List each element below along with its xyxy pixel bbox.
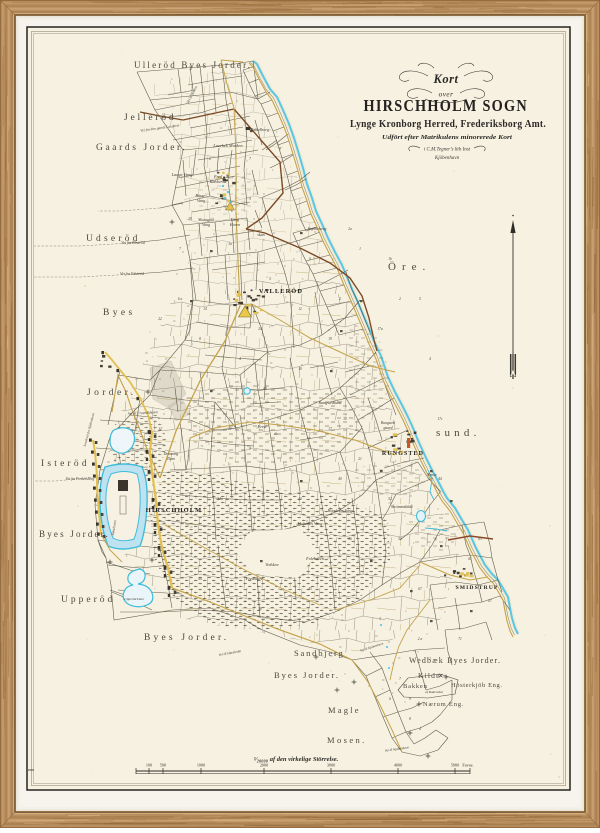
svg-text:10: 10 xyxy=(298,367,302,371)
svg-text:3a: 3a xyxy=(228,242,232,246)
svg-text:3000: 3000 xyxy=(327,763,335,768)
svg-text:Kobberöd: Kobberöd xyxy=(209,179,228,184)
svg-text:Strömmekilde: Strömmekilde xyxy=(391,504,413,509)
svg-text:67: 67 xyxy=(488,599,492,603)
svg-text:24: 24 xyxy=(258,327,262,331)
svg-text:HIRSCHHOLM: HIRSCHHOLM xyxy=(146,507,202,514)
svg-text:RUNGSTED: RUNGSTED xyxy=(382,451,424,457)
svg-text:9: 9 xyxy=(249,447,251,451)
svg-text:Ulleröd Byes Jorder.: Ulleröd Byes Jorder. xyxy=(134,60,252,70)
svg-text:Vei fra Fredensborg: Vei fra Fredensborg xyxy=(66,477,95,481)
svg-text:50: 50 xyxy=(398,537,402,541)
svg-text:Rungstedlund: Rungstedlund xyxy=(317,400,342,405)
svg-text:22: 22 xyxy=(158,317,162,321)
svg-text:Gaards Jorder.: Gaards Jorder. xyxy=(96,143,187,153)
svg-text:SMIDSTRUP: SMIDSTRUP xyxy=(456,585,499,591)
svg-text:4: 4 xyxy=(429,357,431,361)
svg-text:3: 3 xyxy=(249,197,251,201)
svg-text:gaard: gaard xyxy=(384,426,393,430)
svg-text:17a: 17a xyxy=(377,327,383,331)
svg-text:i C.M.Tegner’s lith Inst: i C.M.Tegner’s lith Inst xyxy=(424,148,471,153)
svg-text:12: 12 xyxy=(298,307,302,311)
svg-text:Byes: Byes xyxy=(103,308,136,318)
svg-text:8: 8 xyxy=(409,717,411,721)
svg-text:500: 500 xyxy=(160,763,166,768)
svg-text:Byes Jorder.: Byes Jorder. xyxy=(39,529,110,539)
svg-text:4: 4 xyxy=(239,357,241,361)
svg-text:40: 40 xyxy=(338,477,342,481)
svg-text:Byes Jorder.: Byes Jorder. xyxy=(144,633,229,643)
svg-text:Jelleröd: Jelleröd xyxy=(124,113,176,123)
svg-text:8: 8 xyxy=(199,337,201,341)
svg-text:Rungsted: Rungsted xyxy=(380,421,395,425)
svg-text:Byes Jorder.: Byes Jorder. xyxy=(274,670,340,680)
svg-text:Hofsches Vang: Hofsches Vang xyxy=(297,521,323,526)
svg-text:14: 14 xyxy=(203,307,207,311)
svg-text:Folehaven: Folehaven xyxy=(305,556,324,561)
svg-text:40: 40 xyxy=(298,497,302,501)
svg-text:61: 61 xyxy=(468,557,472,561)
svg-text:45: 45 xyxy=(308,587,312,591)
svg-text:Dam: Dam xyxy=(166,457,175,461)
svg-text:31: 31 xyxy=(228,427,232,431)
svg-text:Vang: Vang xyxy=(197,198,205,203)
svg-text:67: 67 xyxy=(418,587,422,591)
svg-text:Vei fra Ebseröd: Vei fra Ebseröd xyxy=(121,241,145,245)
svg-text:2a: 2a xyxy=(348,227,352,231)
svg-text:7: 7 xyxy=(249,157,251,161)
svg-text:sund.: sund. xyxy=(436,427,481,439)
svg-text:Sandbjerg: Sandbjerg xyxy=(294,648,345,658)
svg-text:Vei fra Edsöröd: Vei fra Edsöröd xyxy=(120,272,144,276)
svg-text:6: 6 xyxy=(389,697,391,701)
svg-text:Kort: Kort xyxy=(433,72,459,86)
svg-text:Wedbæk Byes Jorder.: Wedbæk Byes Jorder. xyxy=(409,656,501,665)
svg-text:100: 100 xyxy=(146,763,152,768)
svg-text:VALLERÖD: VALLERÖD xyxy=(259,288,303,295)
svg-text:5000: 5000 xyxy=(451,763,459,768)
svg-text:21: 21 xyxy=(358,457,362,461)
svg-text:1: 1 xyxy=(359,247,361,251)
svg-text:2: 2 xyxy=(399,297,401,301)
svg-text:Dronning: Dronning xyxy=(163,452,179,456)
svg-text:6: 6 xyxy=(309,257,311,261)
svg-text:2: 2 xyxy=(429,657,431,661)
svg-text:Nærum Eng.: Nærum Eng. xyxy=(423,701,464,708)
svg-text:Upperöd Dam: Upperöd Dam xyxy=(124,597,144,601)
svg-text:Mosen.: Mosen. xyxy=(327,735,367,745)
svg-text:Krone: Krone xyxy=(426,473,437,477)
svg-text:6 a: 6 a xyxy=(178,297,183,301)
svg-text:7: 7 xyxy=(179,247,181,251)
svg-text:Favne.: Favne. xyxy=(462,763,473,768)
svg-text:Laerbek Marken: Laerbek Marken xyxy=(212,143,243,148)
svg-text:5: 5 xyxy=(269,277,271,281)
svg-text:✕: ✕ xyxy=(438,673,443,680)
svg-text:sk.: sk. xyxy=(274,431,278,436)
svg-text:Bakken: Bakken xyxy=(403,683,428,690)
svg-text:Fredskov: Fredskov xyxy=(245,576,264,581)
svg-text:8: 8 xyxy=(279,147,281,151)
svg-text:Fred: Fred xyxy=(257,424,267,429)
svg-text:2 a: 2 a xyxy=(418,637,423,641)
svg-text:2000: 2000 xyxy=(260,763,268,768)
svg-text:19: 19 xyxy=(328,337,332,341)
svg-text:7: 7 xyxy=(399,677,401,681)
svg-text:17c: 17c xyxy=(437,417,443,421)
svg-text:1000: 1000 xyxy=(197,763,205,768)
svg-text:71: 71 xyxy=(458,637,462,641)
svg-text:46: 46 xyxy=(348,537,352,541)
svg-text:4000: 4000 xyxy=(394,763,402,768)
svg-text:44: 44 xyxy=(198,577,202,581)
svg-text:12: 12 xyxy=(158,427,162,431)
svg-text:Öre.: Öre. xyxy=(388,261,431,273)
svg-text:5: 5 xyxy=(419,297,421,301)
svg-text:Kjöbenhavn: Kjöbenhavn xyxy=(434,156,460,161)
svg-text:Lynge Kronborg Herred, Frederi: Lynge Kronborg Herred, Frederiksborg Amt… xyxy=(350,119,546,130)
svg-text:Jorder.: Jorder. xyxy=(87,388,136,398)
svg-text:Isteröd: Isteröd xyxy=(41,459,90,469)
svg-text:Sophieberg: Sophieberg xyxy=(308,226,327,231)
svg-text:Vedskov: Vedskov xyxy=(265,562,279,567)
svg-text:44: 44 xyxy=(438,477,442,481)
svg-text:58: 58 xyxy=(258,607,262,611)
svg-text:29: 29 xyxy=(188,217,192,221)
svg-text:52: 52 xyxy=(388,497,392,501)
svg-text:3: 3 xyxy=(379,617,381,621)
svg-text:Magle: Magle xyxy=(328,705,361,715)
svg-text:skøn: skøn xyxy=(257,232,264,237)
svg-text:Horen: Horen xyxy=(229,222,240,227)
svg-text:2: 2 xyxy=(209,157,211,161)
svg-text:63: 63 xyxy=(478,537,482,541)
svg-text:Udfört efter Matrikulens minor: Udfört efter Matrikulens minorerede Kort xyxy=(382,134,512,141)
svg-text:Hösterkjöb Eng.: Hösterkjöb Eng. xyxy=(451,682,503,689)
svg-text:Mekkelborg: Mekkelborg xyxy=(248,127,269,132)
svg-text:17: 17 xyxy=(328,427,332,431)
svg-text:9: 9 xyxy=(409,697,411,701)
svg-text:Hörsholm Vang: Hörsholm Vang xyxy=(326,508,352,513)
svg-text:2: 2 xyxy=(339,297,341,301)
svg-text:Upperöd: Upperöd xyxy=(61,595,115,605)
svg-text:28: 28 xyxy=(263,387,267,391)
svg-text:33: 33 xyxy=(343,417,347,421)
svg-text:¹⁄₂₀₀₀₀ af den virkelige Störr: ¹⁄₂₀₀₀₀ af den virkelige Störrelse. xyxy=(254,756,339,763)
svg-text:Laage Vang: Laage Vang xyxy=(171,172,194,177)
svg-text:4: 4 xyxy=(419,727,421,731)
svg-text:Vang: Vang xyxy=(202,222,210,227)
svg-text:1b: 1b xyxy=(388,257,392,261)
svg-text:af Rudersdal: af Rudersdal xyxy=(425,690,442,694)
svg-text:34a: 34a xyxy=(217,497,223,501)
svg-text:HIRSCHHOLM SOGN: HIRSCHHOLM SOGN xyxy=(364,96,529,115)
